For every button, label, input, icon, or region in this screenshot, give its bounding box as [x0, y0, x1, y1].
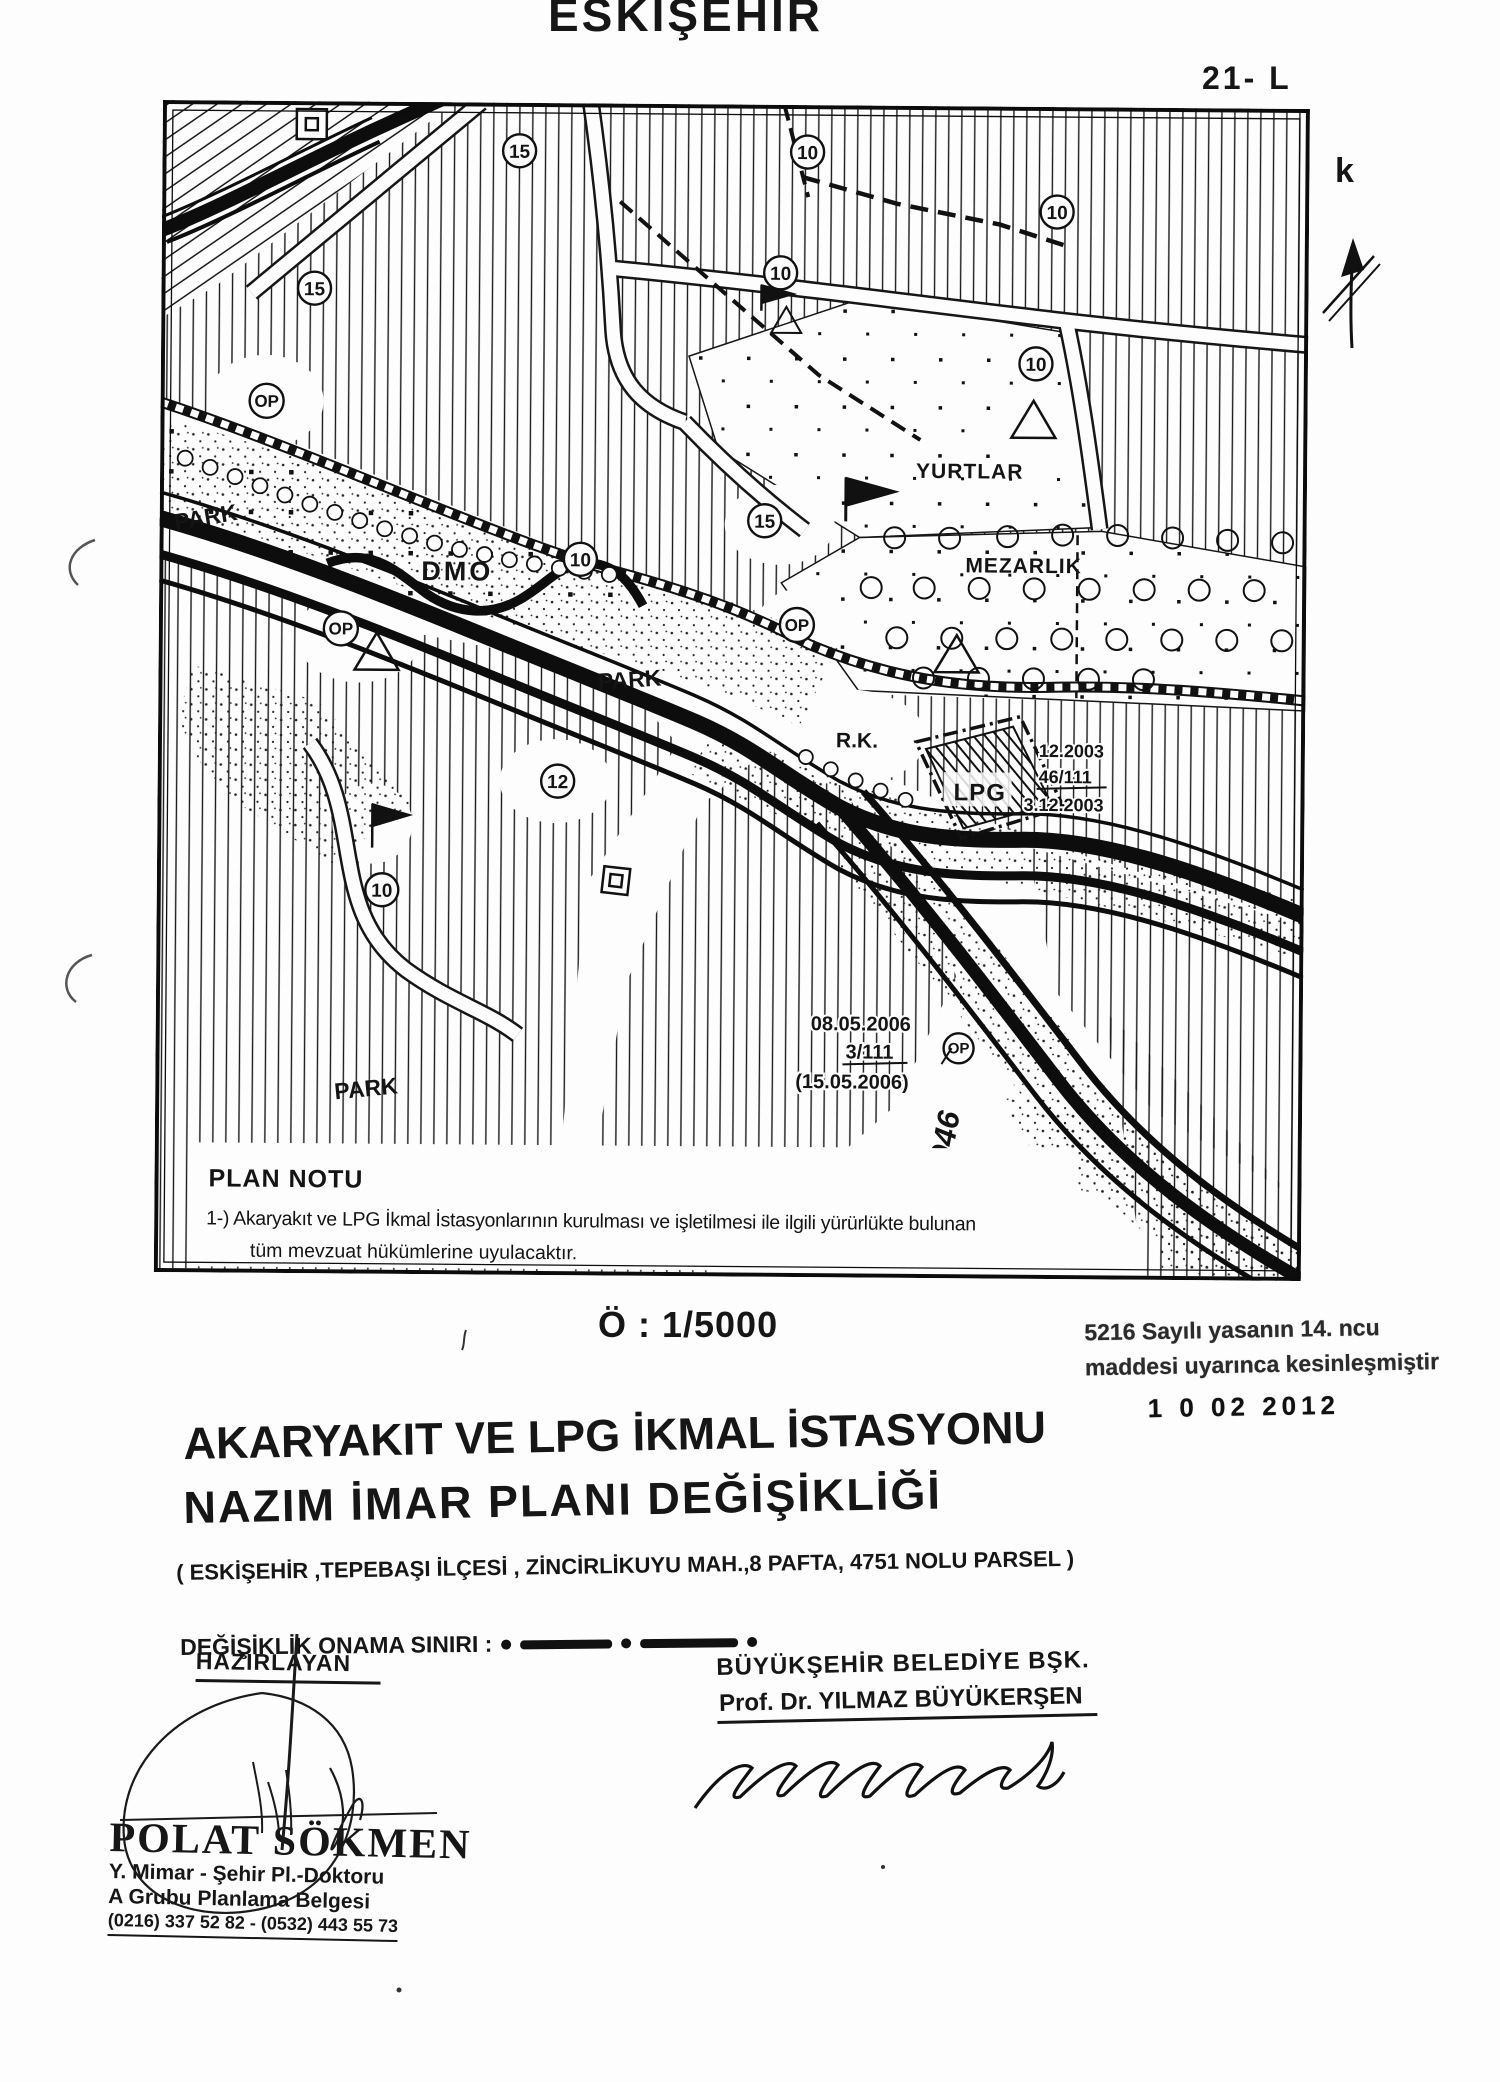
circled-10: 10 — [570, 550, 591, 571]
plan-note-line2: tüm mevzuat hükümlerine uyulacaktır. — [250, 1240, 577, 1265]
lpg-date-top: 12.2003 — [1039, 741, 1104, 762]
circled-10: 10 — [770, 264, 791, 285]
approval-stamp: 5216 Sayılı yasanın 14. ncu maddesi uyar… — [1084, 1309, 1466, 1430]
scale-label: Ö : 1/5000 — [598, 1304, 778, 1346]
planner-stamp-block: POLAT SÖKMEN Y. Mimar - Şehir Pl.-Doktor… — [107, 1816, 471, 1943]
circled-10: 10 — [797, 143, 818, 164]
stamp-line2: maddesi uyarınca kesinleşmiştir — [1085, 1343, 1466, 1384]
op-label: OP — [785, 616, 810, 635]
plan-date-bottom: (15.05.2006) — [795, 1071, 909, 1094]
plan-date-top: 08.05.2006 — [811, 1013, 911, 1036]
city-header: ESKİŞEHİR — [548, 0, 908, 44]
yurtlar-label: YURTLAR — [916, 460, 1024, 484]
rk-label: R.K. — [836, 729, 878, 752]
map-sheet-number: 21- L — [1202, 60, 1292, 97]
mezarlik-label: MEZARLIK — [965, 554, 1082, 578]
document-subtitle: ( ESKİŞEHİR ,TEPEBAŞI İLÇESİ , ZİNCİRLİK… — [176, 1546, 1074, 1586]
lpg-date-bottom: 3.12.2003 — [1023, 795, 1103, 816]
plan-ref: 3/111 — [845, 1041, 893, 1063]
document-title-line1: AKARYAKIT VE LPG İKMAL İSTASYONU — [183, 1401, 1046, 1470]
onama-siniri-dot — [501, 1639, 511, 1649]
lpg-ref: 46/111 — [1039, 767, 1092, 787]
mayor-signature — [695, 1742, 1064, 1808]
scanned-plan-document: ESKİŞEHİR 21- L k — [0, 0, 1500, 2082]
circled-15: 15 — [304, 279, 326, 300]
north-k-label: k — [1335, 152, 1354, 191]
circled-10: 10 — [371, 881, 392, 902]
circled-12: 12 — [547, 772, 568, 793]
zoning-map-canvas: OP OP OP OP 15 10 15 10 10 10 15 10 — [154, 100, 1310, 1281]
dmo-label: DMO — [421, 556, 493, 587]
circled-10: 10 — [1046, 203, 1067, 224]
park-label: PARK — [597, 665, 662, 695]
circled-15: 15 — [509, 142, 531, 163]
plan-note: PLAN NOTU 1-) Akaryakıt ve LPG İkmal İst… — [190, 1142, 1077, 1273]
document-title-line2: NAZIM İMAR PLANI DEĞİŞİKLİĞİ — [183, 1467, 942, 1534]
onama-siniri-dot — [621, 1638, 631, 1648]
plan-note-heading: PLAN NOTU — [208, 1164, 363, 1193]
stamp-date: 1 0 02 2012 — [1147, 1384, 1466, 1429]
zoning-map: OP OP OP OP 15 10 15 10 10 10 15 10 — [154, 100, 1310, 1281]
north-arrow-icon — [1323, 238, 1380, 348]
approved-by-block: BÜYÜKŞEHİR BELEDİYE BŞK. Prof. Dr. YILMA… — [716, 1646, 1097, 1724]
prepared-by-heading: HAZIRLAYAN — [196, 1648, 382, 1685]
onama-siniri-bar — [640, 1639, 738, 1649]
lpg-label: LPG — [953, 779, 1006, 806]
planner-phones: (0216) 337 52 82 - (0532) 443 55 73 — [107, 1909, 398, 1941]
op-label: OP — [254, 392, 279, 411]
planner-name: POLAT SÖKMEN — [109, 1816, 472, 1868]
onama-siniri-bar — [520, 1640, 612, 1650]
approved-by-name: Prof. Dr. YILMAZ BÜYÜKERŞEN — [717, 1682, 1097, 1724]
op-label: OP — [328, 619, 353, 638]
onama-siniri-dot — [747, 1637, 757, 1647]
city-title: ESKİŞEHİR — [548, 0, 908, 42]
circled-10: 10 — [1025, 355, 1046, 376]
circled-15: 15 — [754, 512, 776, 533]
